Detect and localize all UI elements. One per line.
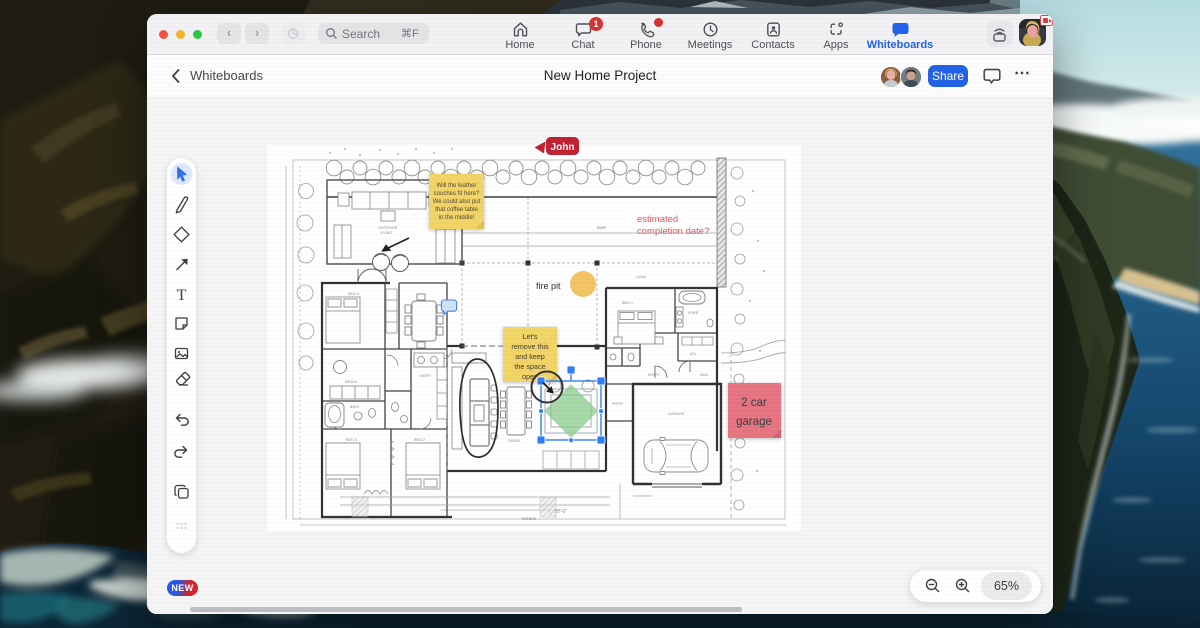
svg-text:lawn: lawn	[597, 225, 607, 230]
svg-text:remove this: remove this	[511, 342, 549, 351]
svg-text:Let's: Let's	[523, 332, 538, 341]
svg-text:fire pit: fire pit	[536, 281, 561, 291]
svg-text:DINING: DINING	[508, 439, 521, 443]
svg-text:garage: garage	[736, 416, 772, 428]
svg-text:BED 2: BED 2	[414, 438, 425, 442]
svg-text:SHWR: SHWR	[688, 311, 699, 315]
svg-text:LIVING: LIVING	[380, 231, 392, 235]
svg-text:GARAGE: GARAGE	[668, 412, 685, 416]
svg-text:in the middle!: in the middle!	[439, 215, 475, 221]
svg-text:OUTDOOR: OUTDOOR	[378, 226, 398, 230]
svg-text:We could also put: We could also put	[433, 199, 481, 205]
svg-text:BATH: BATH	[350, 405, 360, 409]
svg-text:couches fit here?: couches fit here?	[434, 191, 480, 197]
svg-text:PNTRY: PNTRY	[612, 402, 624, 406]
svg-text:BED 1: BED 1	[622, 301, 633, 305]
svg-text:LNDRY: LNDRY	[419, 374, 431, 378]
svg-text:2 car: 2 car	[741, 397, 767, 409]
svg-text:BED 4: BED 4	[348, 292, 359, 296]
svg-text:the space: the space	[514, 362, 545, 371]
svg-text:ACL: ACL	[690, 352, 697, 356]
svg-text:Will the leather: Will the leather	[437, 183, 477, 189]
svg-text:completion date?: completion date?	[637, 226, 709, 237]
svg-text:T: T	[177, 287, 187, 304]
svg-text:BED 3: BED 3	[346, 438, 357, 442]
svg-text:that coffee table: that coffee table	[435, 207, 478, 213]
svg-text:estimated: estimated	[637, 214, 678, 225]
svg-text:terrace: terrace	[522, 516, 537, 521]
svg-text:LANAI: LANAI	[636, 275, 646, 279]
svg-text:John: John	[551, 142, 575, 153]
svg-text:ENTRY: ENTRY	[648, 373, 660, 377]
svg-text:MUD: MUD	[700, 373, 708, 377]
svg-text:and keep: and keep	[515, 352, 545, 361]
svg-text:MEDIA: MEDIA	[345, 380, 357, 384]
